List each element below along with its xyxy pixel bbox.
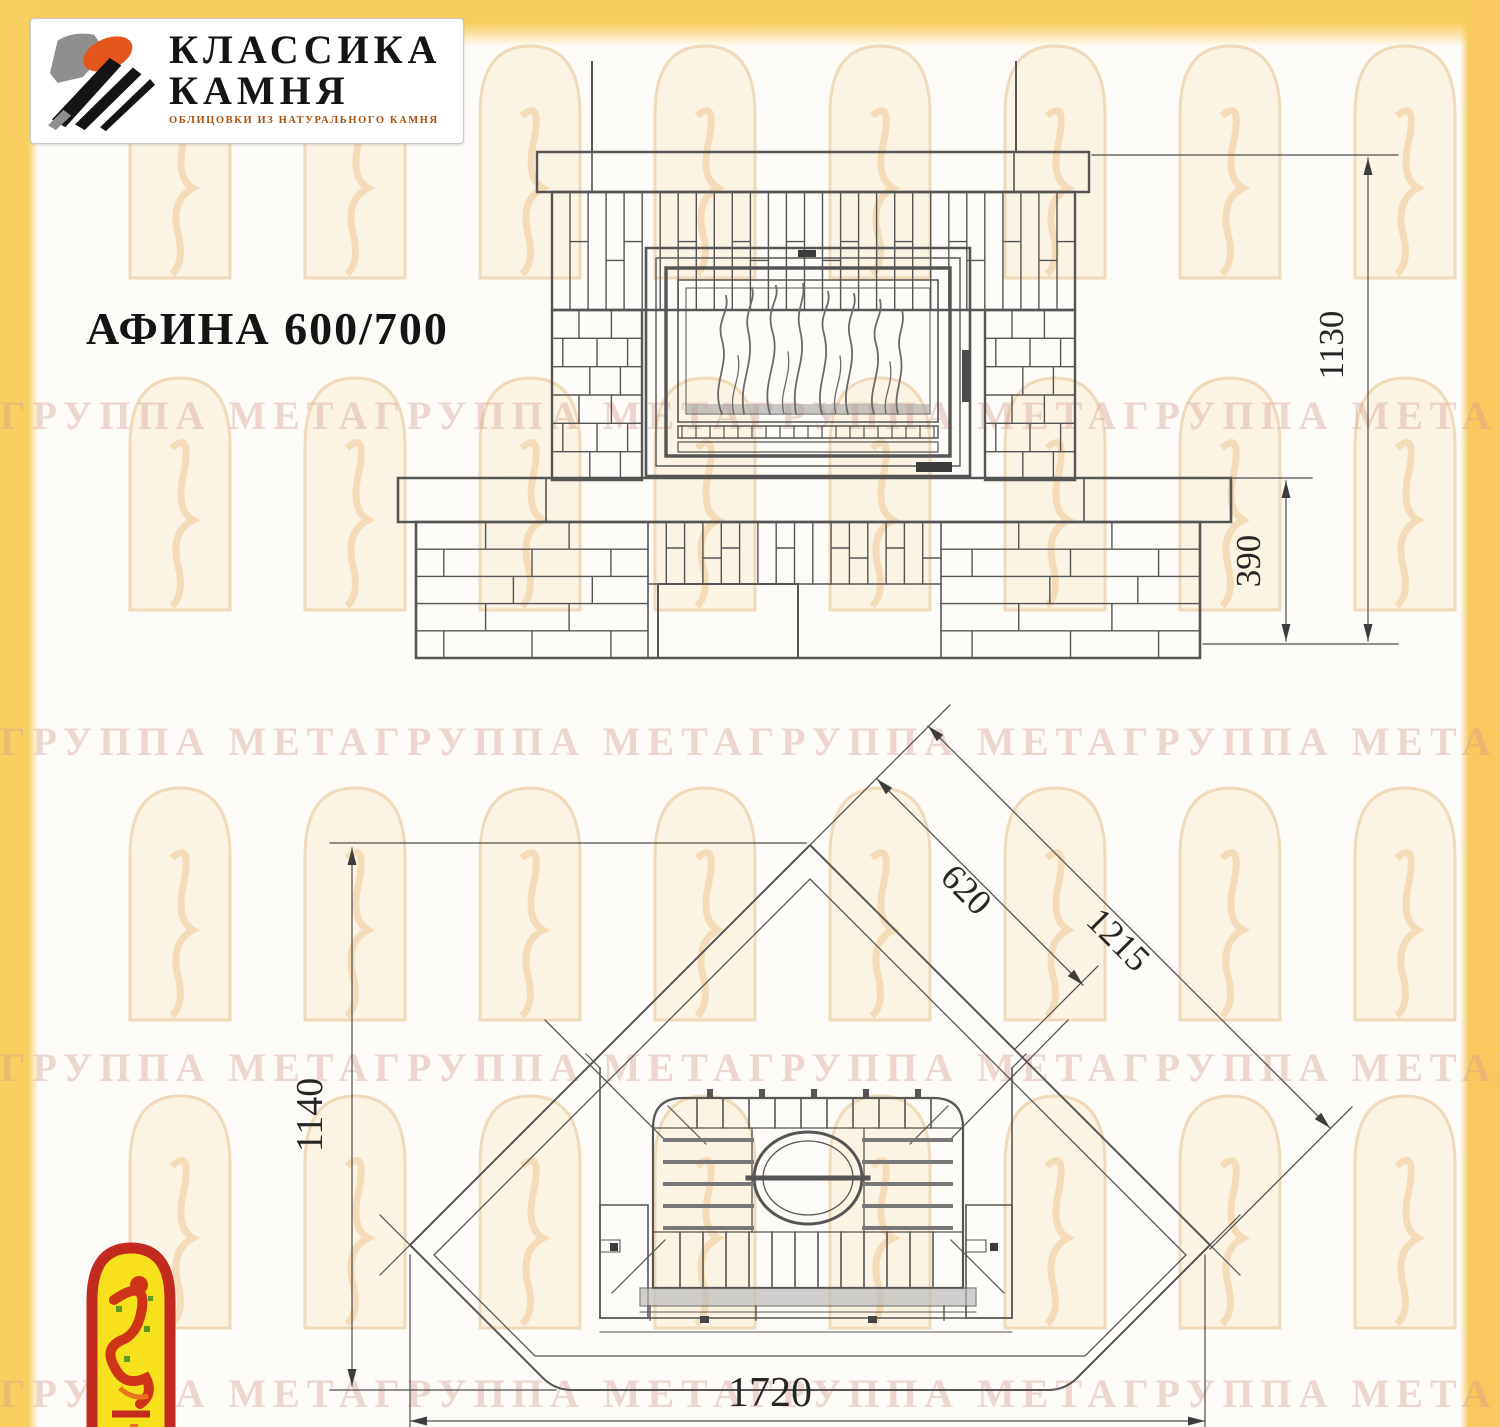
logo-line2: КАМНЯ [169, 71, 457, 111]
dim-390-label: 390 [1229, 535, 1268, 588]
plan-insert [612, 1089, 1004, 1323]
insert-rib-stubs [707, 1089, 921, 1098]
dim-1215-label: 1215 [1079, 900, 1158, 979]
company-logo: КЛАССИКА КАМНЯ ОБЛИЦОВКИ ИЗ НАТУРАЛЬНОГО… [30, 18, 464, 144]
door-handle [962, 350, 970, 402]
ember-band [686, 404, 930, 413]
latch-mark [798, 250, 816, 257]
chimney-lines [592, 62, 1016, 152]
hearth-front-bar [640, 1288, 976, 1306]
dim-1720-label: 1720 [728, 1370, 812, 1416]
flames-drawing [718, 284, 903, 414]
plan-view-drawing: 1140 1720 620 1215 [289, 705, 1352, 1427]
dimension-arrows [348, 158, 1373, 1426]
logo-mark-icon [41, 27, 163, 133]
bench-shelf [398, 478, 1231, 522]
spec-sheet-page: ГРУППА МЕТАГРУППА МЕТАГРУППА МЕТАГРУППА … [0, 0, 1500, 1427]
logo-line1: КЛАССИКА [169, 29, 457, 71]
mantel-shelf [537, 152, 1089, 192]
meta-emblem-icon [84, 1238, 178, 1427]
base-masonry [416, 522, 1200, 658]
model-title: АФИНА 600/700 [86, 302, 449, 355]
left-ribs [665, 1140, 752, 1228]
technical-drawing: 1130 390 [0, 0, 1500, 1427]
dim-620-label: 620 [933, 856, 999, 922]
stone-column-right [985, 310, 1075, 480]
firebox-insert [646, 248, 970, 476]
front-elevation-drawing: 1130 390 [398, 62, 1398, 658]
plan-inner-outline [434, 879, 1186, 1356]
brand-plate [916, 462, 952, 472]
dim-1130-label: 1130 [1312, 311, 1351, 380]
cleanout-door [658, 584, 798, 658]
right-ribs [864, 1140, 951, 1228]
logo-wordmark: КЛАССИКА КАМНЯ ОБЛИЦОВКИ ИЗ НАТУРАЛЬНОГО… [169, 29, 457, 126]
door-grille [678, 426, 938, 452]
logo-tagline: ОБЛИЦОВКИ ИЗ НАТУРАЛЬНОГО КАМНЯ [169, 115, 457, 126]
dim-1140-label: 1140 [289, 1078, 331, 1153]
stone-column-left [552, 310, 642, 480]
